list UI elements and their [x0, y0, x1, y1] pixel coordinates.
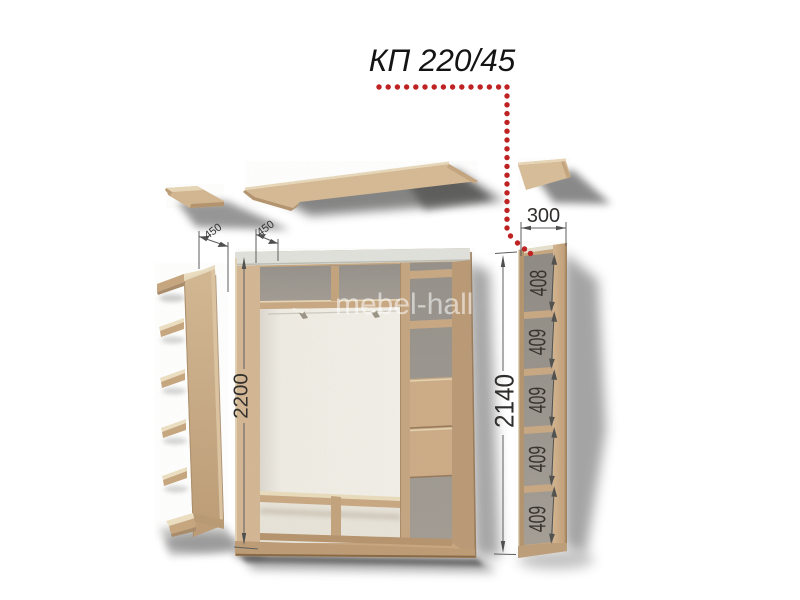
svg-text:300: 300 — [527, 205, 560, 227]
svg-text:409: 409 — [525, 387, 551, 413]
svg-text:409: 409 — [525, 446, 551, 472]
svg-text:2200: 2200 — [230, 373, 253, 419]
svg-text:mebel-hall: mebel-hall — [335, 288, 473, 321]
svg-text:409: 409 — [525, 329, 551, 355]
svg-text:КП 220/45: КП 220/45 — [369, 42, 516, 78]
svg-text:409: 409 — [525, 506, 551, 532]
svg-text:2140: 2140 — [490, 374, 519, 428]
svg-text:408: 408 — [526, 270, 552, 296]
